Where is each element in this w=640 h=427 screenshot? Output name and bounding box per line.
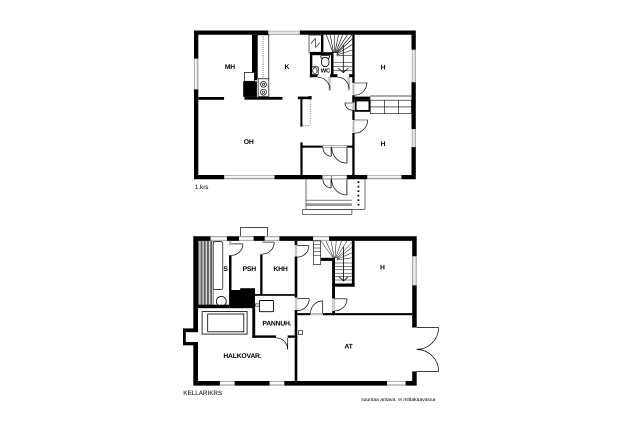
svg-text:H: H [381, 141, 386, 148]
svg-text:H: H [380, 265, 385, 272]
svg-text:MH: MH [225, 64, 235, 71]
svg-text:1.krs: 1.krs [195, 184, 209, 191]
svg-text:suuntaa antava, ei mittakaavas: suuntaa antava, ei mittakaavassa [361, 397, 435, 403]
svg-text:K: K [285, 64, 290, 71]
svg-text:OH: OH [244, 139, 254, 146]
svg-text:HALKOVAR.: HALKOVAR. [223, 353, 261, 360]
svg-text:PSH: PSH [243, 266, 257, 273]
svg-text:PANNUH.: PANNUH. [262, 320, 291, 327]
svg-text:AT: AT [344, 343, 353, 350]
svg-text:KELLARIKRS: KELLARIKRS [183, 390, 222, 397]
svg-text:S: S [223, 266, 228, 273]
svg-text:H: H [381, 64, 386, 71]
svg-text:WC: WC [321, 68, 331, 75]
svg-text:KHH: KHH [273, 266, 287, 273]
